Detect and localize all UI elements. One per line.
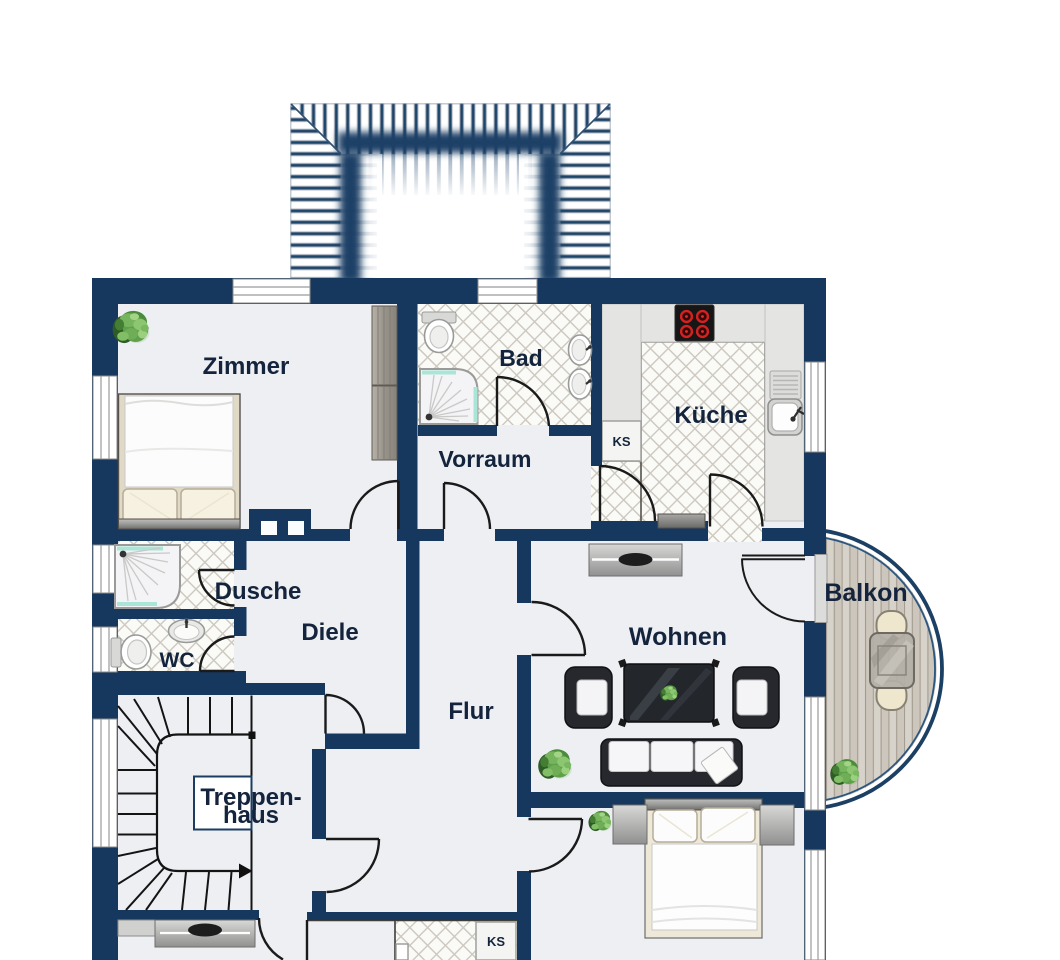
- svg-text:Wohnen: Wohnen: [629, 623, 727, 651]
- svg-text:Dusche: Dusche: [215, 578, 302, 605]
- svg-text:Diele: Diele: [301, 619, 358, 646]
- svg-text:WC: WC: [160, 649, 195, 672]
- svg-text:Flur: Flur: [448, 698, 493, 725]
- svg-text:KS: KS: [612, 434, 630, 449]
- svg-text:Balkon: Balkon: [824, 579, 907, 607]
- svg-text:Zimmer: Zimmer: [203, 353, 290, 380]
- svg-text:Küche: Küche: [674, 402, 747, 429]
- svg-text:Vorraum: Vorraum: [439, 446, 532, 472]
- svg-text:KS: KS: [487, 934, 505, 949]
- svg-text:Bad: Bad: [499, 345, 542, 371]
- svg-text:haus: haus: [223, 802, 279, 829]
